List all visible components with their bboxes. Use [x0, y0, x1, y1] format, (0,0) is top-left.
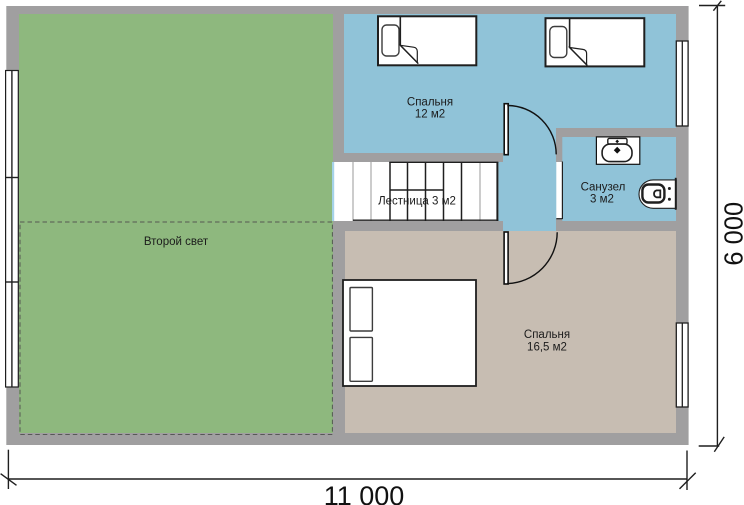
svg-text:16,5 м2: 16,5 м2 — [527, 342, 567, 354]
svg-text:Спальня: Спальня — [407, 96, 453, 108]
svg-text:Спальня: Спальня — [524, 329, 570, 341]
svg-text:Санузел: Санузел — [581, 182, 626, 194]
svg-text:11 000: 11 000 — [324, 481, 405, 505]
svg-text:3 м2: 3 м2 — [590, 194, 614, 206]
svg-text:12 м2: 12 м2 — [415, 109, 445, 121]
svg-text:Второй свет: Второй свет — [144, 236, 209, 248]
svg-text:6 000: 6 000 — [721, 202, 744, 266]
svg-text:Лестница 3 м2: Лестница 3 м2 — [378, 196, 456, 208]
